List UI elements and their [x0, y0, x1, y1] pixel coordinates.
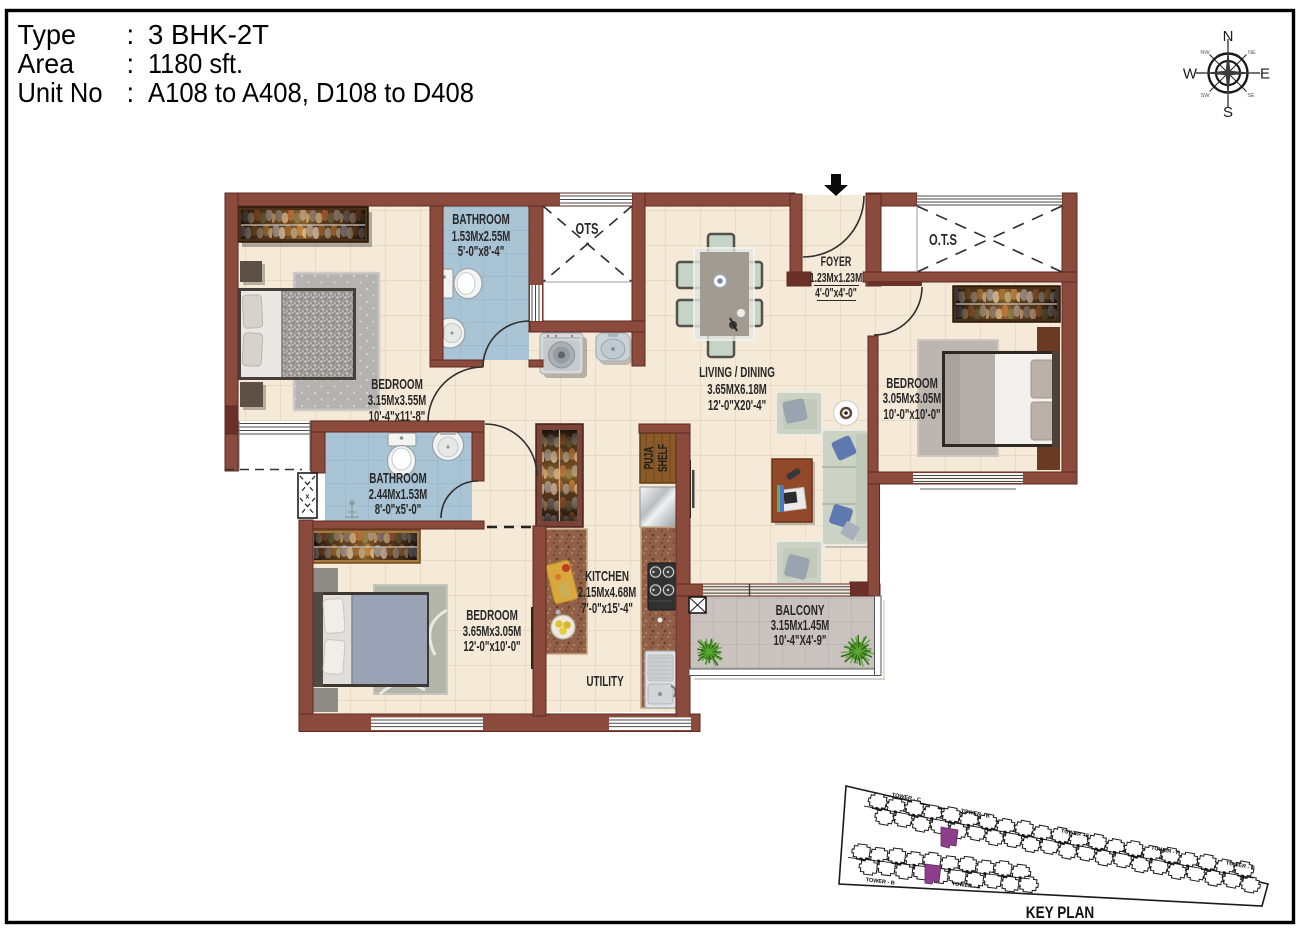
svg-text:7'-0"x15'-4": 7'-0"x15'-4"	[581, 600, 633, 617]
svg-text:Area: Area	[18, 48, 75, 79]
svg-text:10'-0"x10'-0": 10'-0"x10'-0"	[883, 406, 940, 423]
svg-text:12'-0"x10'-0": 12'-0"x10'-0"	[463, 638, 520, 655]
svg-text:OTS: OTS	[575, 219, 598, 238]
svg-text:SW: SW	[1201, 93, 1211, 99]
svg-text::: :	[127, 19, 135, 50]
svg-text:W: W	[1183, 66, 1198, 83]
svg-text:O.T.S: O.T.S	[929, 230, 957, 249]
svg-text:10'-4"x11'-8": 10'-4"x11'-8"	[369, 408, 426, 425]
svg-text:10'-4"X4'-9": 10'-4"X4'-9"	[774, 632, 827, 649]
svg-text:8'-0"x5'-0": 8'-0"x5'-0"	[375, 501, 422, 518]
svg-text:2.15Mx4.68M: 2.15Mx4.68M	[578, 584, 636, 601]
svg-text:KEY PLAN: KEY PLAN	[1026, 904, 1094, 923]
svg-text:A108 to A408, D108 to D408: A108 to A408, D108 to D408	[148, 77, 474, 108]
svg-text:SHELF: SHELF	[656, 444, 670, 472]
svg-text:S: S	[1223, 104, 1233, 121]
svg-text:BATHROOM: BATHROOM	[452, 211, 509, 228]
svg-text:1180 sft.: 1180 sft.	[148, 48, 243, 79]
svg-text:PUJA: PUJA	[642, 447, 656, 470]
svg-text:4'-0"x4'-0": 4'-0"x4'-0"	[815, 286, 857, 300]
svg-text:E: E	[1260, 66, 1270, 83]
svg-text:3.65MX6.18M: 3.65MX6.18M	[707, 381, 766, 398]
svg-text:5'-0"x8'-4": 5'-0"x8'-4"	[458, 243, 505, 260]
svg-text:KITCHEN: KITCHEN	[585, 568, 629, 585]
svg-text:1.23Mx1.23M: 1.23Mx1.23M	[810, 271, 862, 285]
svg-text::: :	[127, 48, 135, 79]
svg-text:BEDROOM: BEDROOM	[466, 607, 518, 624]
svg-text:3.15Mx3.55M: 3.15Mx3.55M	[368, 392, 426, 409]
svg-text:x: x	[306, 494, 310, 501]
svg-text:Type: Type	[18, 19, 77, 50]
svg-text:3.05Mx3.05M: 3.05Mx3.05M	[883, 390, 941, 407]
svg-text:SE: SE	[1247, 93, 1255, 99]
svg-text:LIVING / DINING: LIVING / DINING	[699, 364, 775, 381]
svg-text:N: N	[1223, 28, 1234, 45]
svg-text:BEDROOM: BEDROOM	[371, 376, 423, 393]
svg-text:BATHROOM: BATHROOM	[369, 470, 426, 487]
svg-text:Unit No: Unit No	[18, 77, 103, 108]
svg-text::: :	[127, 77, 135, 108]
svg-text:UTILITY: UTILITY	[586, 673, 624, 690]
svg-text:NW: NW	[1200, 50, 1210, 56]
svg-text:3 BHK-2T: 3 BHK-2T	[148, 19, 269, 50]
svg-text:FOYER: FOYER	[821, 255, 852, 269]
svg-text:12'-0"X20'-4": 12'-0"X20'-4"	[708, 397, 766, 414]
svg-text:NE: NE	[1248, 50, 1256, 56]
